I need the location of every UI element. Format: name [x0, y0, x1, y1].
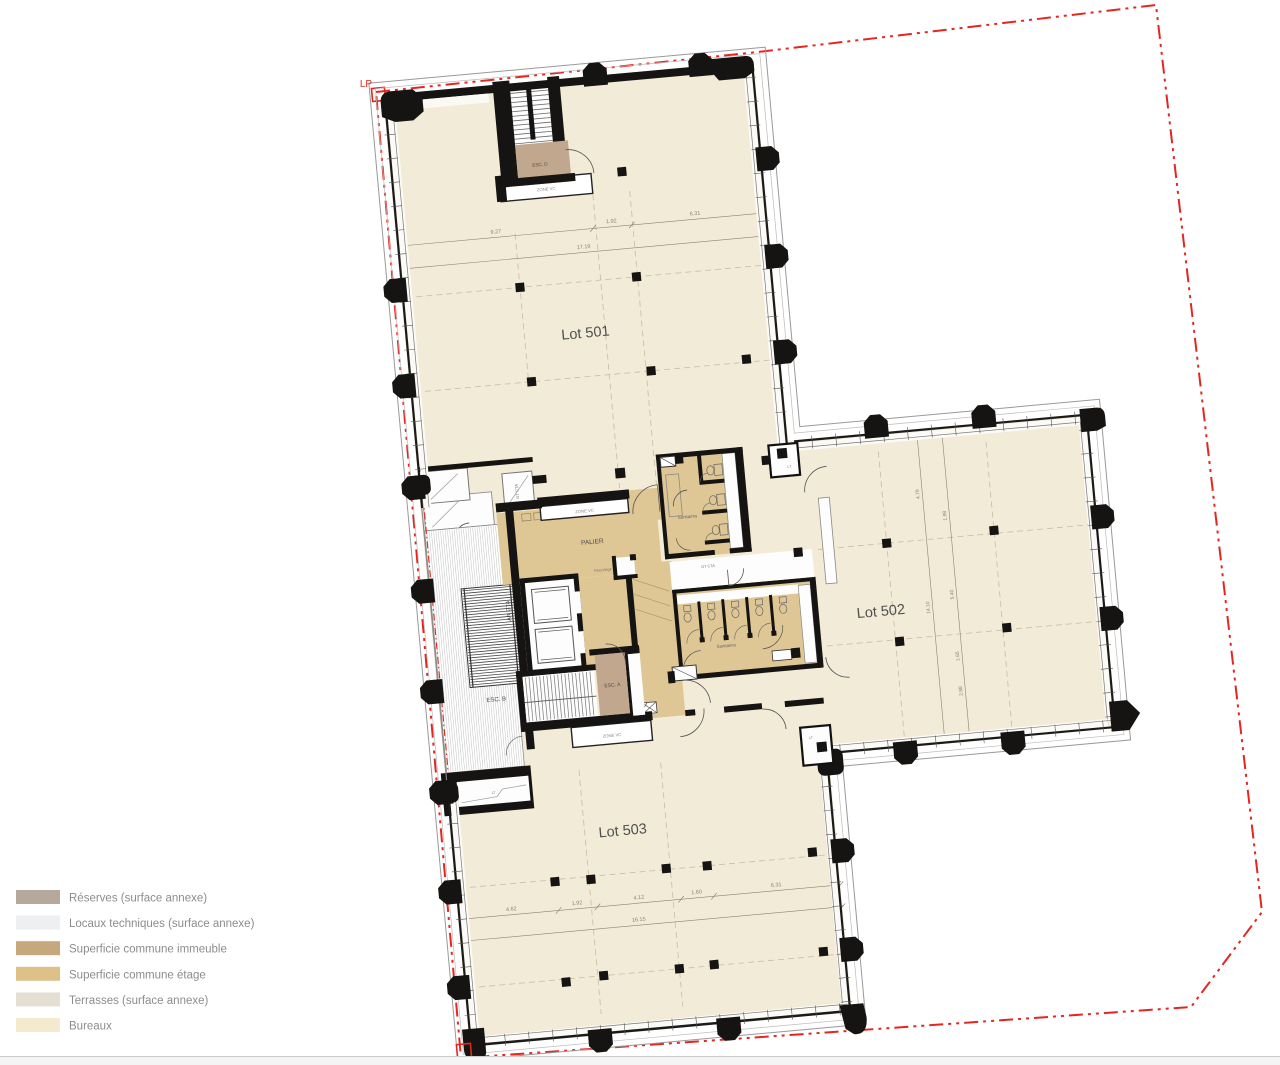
- svg-text:Superficie commune étage: Superficie commune étage: [69, 969, 206, 981]
- svg-text:1.98: 1.98: [942, 510, 949, 520]
- svg-text:Locaux techniques (surface ann: Locaux techniques (surface annexe): [69, 918, 255, 930]
- svg-text:Superficie commune immeuble: Superficie commune immeuble: [69, 944, 227, 956]
- svg-text:Terrasses (surface annexe): Terrasses (surface annexe): [69, 995, 209, 1007]
- svg-text:6.31: 6.31: [689, 211, 700, 218]
- svg-text:4.62: 4.62: [506, 906, 517, 913]
- svg-text:Réserves (surface annexe): Réserves (surface annexe): [69, 893, 207, 905]
- svg-text:1.65: 1.65: [955, 651, 962, 661]
- svg-text:17.19: 17.19: [577, 244, 591, 251]
- svg-text:2.88: 2.88: [958, 686, 965, 696]
- svg-text:Bureaux: Bureaux: [69, 1021, 112, 1033]
- svg-text:14.10: 14.10: [925, 601, 932, 614]
- svg-text:4.12: 4.12: [633, 895, 644, 902]
- svg-text:5.40: 5.40: [949, 589, 956, 599]
- svg-text:9.27: 9.27: [490, 229, 501, 236]
- svg-text:6.31: 6.31: [771, 882, 782, 889]
- svg-text:4.79: 4.79: [915, 489, 922, 499]
- svg-text:LP: LP: [360, 79, 373, 90]
- svg-text:16.15: 16.15: [632, 917, 646, 924]
- svg-text:1.92: 1.92: [606, 218, 617, 225]
- svg-text:1.60: 1.60: [691, 889, 702, 896]
- svg-text:1.92: 1.92: [571, 900, 582, 907]
